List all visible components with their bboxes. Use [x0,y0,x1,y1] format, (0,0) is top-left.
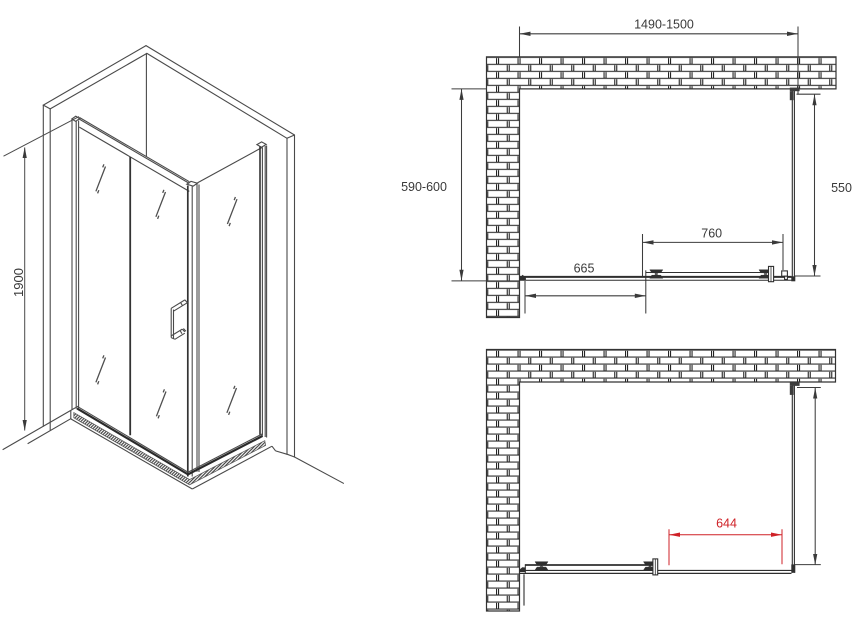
svg-text:1490-1500: 1490-1500 [634,18,694,32]
svg-text:665: 665 [574,261,595,275]
svg-text:550: 550 [831,181,852,195]
svg-text:1900: 1900 [11,268,26,297]
svg-text:590-600: 590-600 [401,180,447,194]
svg-text:644: 644 [716,517,737,531]
svg-text:760: 760 [701,226,722,240]
